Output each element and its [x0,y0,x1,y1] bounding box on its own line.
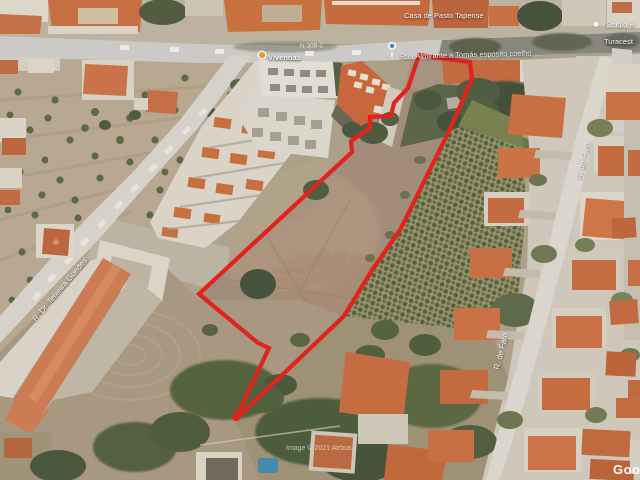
svg-text:Google: Google [613,462,640,477]
svg-text:N 308-2: N 308-2 [300,42,324,50]
svg-text:Casa de Pasto Tapense: Casa de Pasto Tapense [404,11,484,20]
svg-text:Studio H: Studio H [606,20,635,29]
svg-text:Image © 2021 Airbus: Image © 2021 Airbus [286,444,352,452]
svg-text:Vivendas: Vivendas [268,53,301,62]
svg-text:Turacest: Turacest [604,37,634,46]
